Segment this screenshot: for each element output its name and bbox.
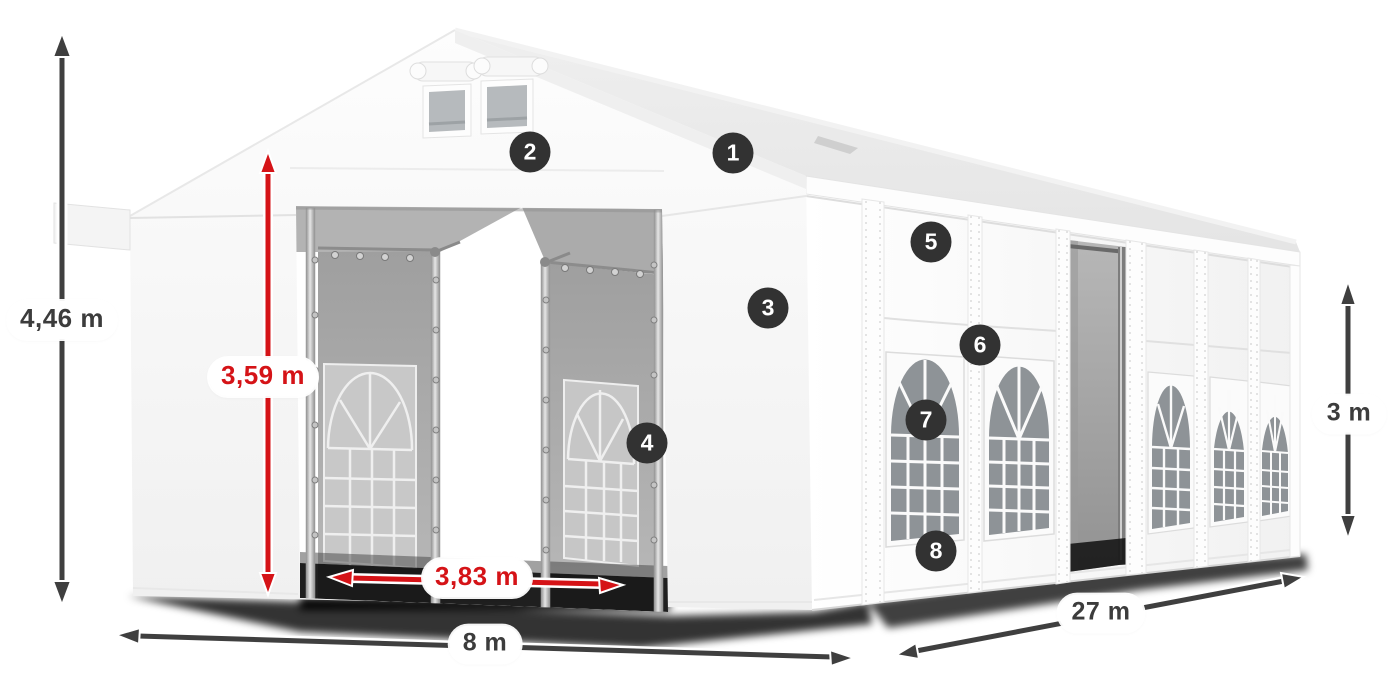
total-height-label: 4,46 m <box>8 301 116 339</box>
hotspot-6[interactable]: 6 <box>960 325 1001 366</box>
entrance-width-value: 3,83 m <box>435 561 519 591</box>
arched-window <box>1148 372 1194 534</box>
entrance-height-label: 3,59 m <box>209 358 317 396</box>
entrance-width-label: 3,83 m <box>423 559 531 597</box>
hotspot-3[interactable]: 3 <box>748 288 789 329</box>
hotspot-7[interactable]: 7 <box>906 400 947 441</box>
side-height-value: 3 m <box>1327 399 1372 427</box>
hotspot-8[interactable]: 8 <box>916 531 957 572</box>
tent-illustration <box>0 0 1400 700</box>
hotspot-2[interactable]: 2 <box>510 132 551 173</box>
total-height-value: 4,46 m <box>20 303 104 333</box>
front-width-value: 8 m <box>463 629 508 657</box>
tent-diagram-stage: 4,46 m 3,59 m 3,83 m 8 m 27 m 3 m 1 2 3 … <box>0 0 1400 700</box>
arched-window <box>984 356 1054 541</box>
hotspot-1[interactable]: 1 <box>713 133 754 174</box>
hotspot-4[interactable]: 4 <box>627 423 668 464</box>
arched-window <box>1210 377 1248 527</box>
arched-window <box>886 352 964 547</box>
entrance-height-value: 3,59 m <box>221 360 305 390</box>
side-door-opening <box>1068 240 1126 572</box>
arched-window <box>1258 382 1292 521</box>
side-height-label: 3 m <box>1314 396 1385 433</box>
length-value: 27 m <box>1072 598 1131 626</box>
hotspot-5[interactable]: 5 <box>911 222 952 263</box>
front-width-label: 8 m <box>450 626 521 663</box>
front-entrance <box>290 200 680 620</box>
length-label: 27 m <box>1059 595 1144 632</box>
